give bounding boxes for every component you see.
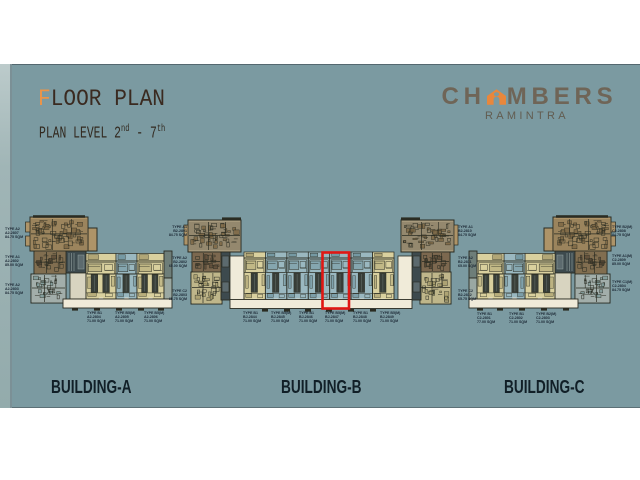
svg-text:71.00 SQM: 71.00 SQM [380,319,398,323]
svg-text:71.00 SQM: 71.00 SQM [353,319,371,323]
svg-text:65.75 SQM: 65.75 SQM [169,297,187,301]
svg-text:71.00 SQM: 71.00 SQM [115,319,133,323]
svg-text:71.00 SQM: 71.00 SQM [325,319,343,323]
svg-text:85.00 SQM: 85.00 SQM [5,263,23,267]
svg-text:71.00 SQM: 71.00 SQM [299,319,317,323]
svg-text:84.75 SQM: 84.75 SQM [458,233,476,237]
svg-text:65.00 SQM: 65.00 SQM [458,264,476,268]
svg-text:71.00 SQM: 71.00 SQM [271,319,289,323]
svg-text:84.75 SQM: 84.75 SQM [169,233,187,237]
svg-text:71.00 SQM: 71.00 SQM [536,320,554,324]
svg-text:71.00 SQM: 71.00 SQM [243,319,261,323]
svg-text:71.00 SQM: 71.00 SQM [87,319,105,323]
svg-text:71.00 SQM: 71.00 SQM [144,319,162,323]
svg-text:84.75 SQM: 84.75 SQM [5,291,23,295]
svg-text:85.00 SQM: 85.00 SQM [612,262,630,266]
svg-text:65.00 SQM: 65.00 SQM [169,264,187,268]
svg-text:84.75 SQM: 84.75 SQM [5,235,23,239]
svg-text:77.00 SQM: 77.00 SQM [477,320,495,324]
svg-text:84.75 SQM: 84.75 SQM [612,233,630,237]
svg-text:84.75 SQM: 84.75 SQM [612,288,630,292]
svg-text:71.00 SQM: 71.00 SQM [509,320,527,324]
svg-text:65.75 SQM: 65.75 SQM [458,297,476,301]
